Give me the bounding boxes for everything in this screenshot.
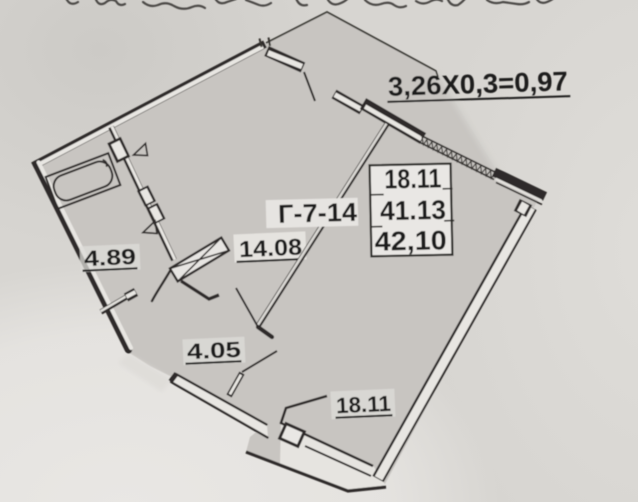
svg-text:18.11: 18.11: [335, 391, 391, 418]
svg-text:4.89: 4.89: [83, 244, 136, 271]
svg-text:18.11: 18.11: [384, 163, 442, 194]
svg-text:41.13: 41.13: [380, 195, 447, 226]
svg-text:14.08: 14.08: [238, 234, 302, 263]
svg-text:4.05: 4.05: [186, 337, 241, 364]
svg-text:42,10: 42,10: [374, 225, 447, 257]
svg-text:Г-7-14: Г-7-14: [278, 197, 358, 229]
